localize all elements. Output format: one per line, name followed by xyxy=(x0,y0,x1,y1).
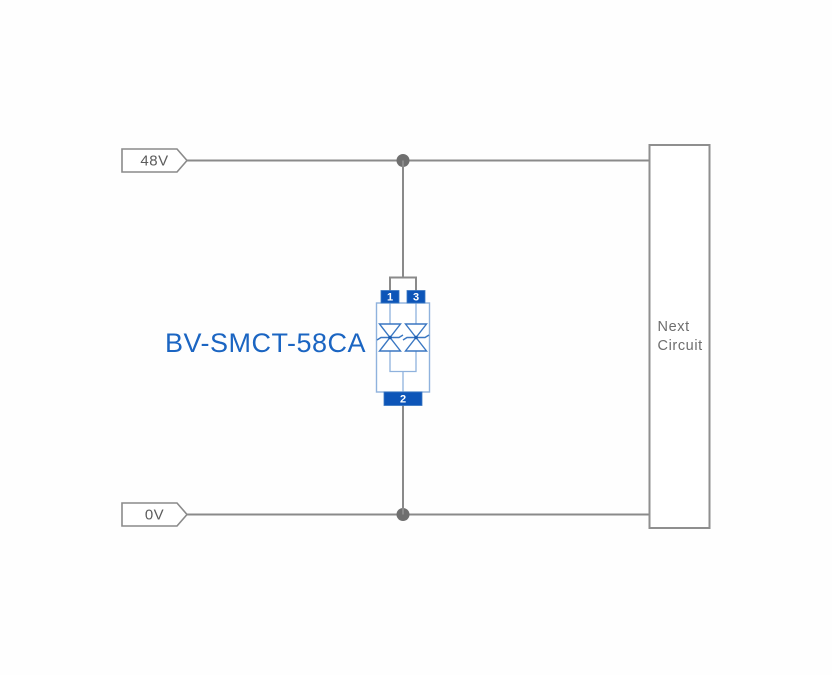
wire-pin-split xyxy=(390,278,416,291)
pin-1: 1 xyxy=(381,291,399,304)
diode-center-dot xyxy=(414,336,418,340)
diode-center-dot xyxy=(388,336,392,340)
voltage-tag-0v-label: 0V xyxy=(145,507,164,524)
component-label: BV-SMCT-58CA xyxy=(165,328,366,358)
rail-bottom: 0V xyxy=(122,503,650,526)
tvs-component: 1 3 2 BV-SMCT-58CA xyxy=(165,291,430,406)
next-circuit-label-line2: Circuit xyxy=(658,338,703,354)
pin-3-number: 3 xyxy=(413,292,419,304)
rail-top: 48V xyxy=(122,149,650,172)
pin-3: 3 xyxy=(407,291,425,304)
pin-2-number: 2 xyxy=(400,394,406,406)
circuit-diagram: 48V 0V xyxy=(0,0,832,675)
pin-1-number: 1 xyxy=(387,292,393,304)
pin-2: 2 xyxy=(384,392,422,406)
voltage-tag-48v-label: 48V xyxy=(140,153,168,170)
next-circuit-box xyxy=(650,145,710,528)
schematic-canvas: 48V 0V xyxy=(0,0,832,675)
next-circuit-block: Next Circuit xyxy=(650,145,710,528)
next-circuit-label-line1: Next xyxy=(658,319,690,335)
